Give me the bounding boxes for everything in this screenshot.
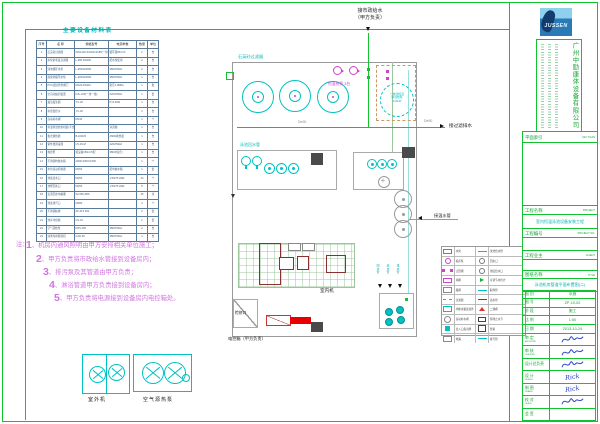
table-cell: L-380/2200W [75, 66, 109, 74]
table-cell [109, 158, 137, 166]
table-row: 7臭氧发生器YC-20P=0.2kW1台 [37, 99, 159, 107]
indoor-unit-box [259, 243, 281, 285]
pump-dot [396, 306, 404, 314]
legend-symbol [444, 316, 451, 323]
table-cell: 2 [137, 57, 148, 65]
legend-label: 二通阀 [489, 305, 525, 314]
project-name: 室内恒温泳池设备安装工程 [523, 219, 597, 224]
table-row: 22空气源热泵KRS-150380V/50Hz2台 [37, 225, 159, 233]
titleblock-row: 会 签 [522, 409, 596, 421]
table-cell: 个 [148, 158, 159, 166]
table-row: 20不锈钢扶梯SF-215 3042套 [37, 208, 159, 216]
table-cell: 台 [148, 74, 159, 82]
table-cell: 台 [148, 225, 159, 233]
table-cell: 19 [37, 200, 47, 208]
circulation-pump [367, 159, 377, 169]
legend-symbol [443, 249, 452, 254]
table-cell: 16 [37, 175, 47, 183]
table-cell: 1 [137, 108, 148, 116]
table-cell: 按摩池循环水泵 [47, 74, 75, 82]
table-row: 5PVC连接管件阀门DN20-DN110耐压1.0MPa1批 [37, 82, 159, 90]
signature-text: Rick [565, 372, 581, 382]
legend-symbol [443, 287, 452, 293]
table-row: 4按摩池循环水泵L-380/2200W380V/50Hz1台 [37, 74, 159, 82]
pipe-size-label: De50 [424, 119, 432, 123]
axis-marker [226, 72, 234, 80]
table-cell: 个 [148, 175, 159, 183]
table-cell: 个 [148, 200, 159, 208]
table-cell: 24 [137, 175, 148, 183]
table-cell: 不锈钢均衡水箱 [47, 158, 75, 166]
table-cell: 220V/50Hz [109, 91, 137, 99]
titleblock-value [550, 409, 595, 420]
table-cell: 不锈钢扶梯 [47, 208, 75, 216]
table-cell: CS-01 [75, 217, 109, 225]
table-cell: DN50 [75, 166, 109, 174]
table-cell: 配均衡水箱 [109, 166, 137, 174]
indoor-unit-label: 室内机 [320, 288, 334, 294]
table-row: 21池岸冲身器CS-012套 [37, 217, 159, 225]
drawing-sheet: 主要设备材料表 序号名 称规格型号电源参数数量单位1石英砂过滤器WG1400 Φ… [0, 0, 600, 424]
table-cell: DN40 [75, 116, 109, 124]
table-cell: 14 [37, 158, 47, 166]
table-cell: 22 [37, 225, 47, 233]
table-cell: 台 [148, 150, 159, 158]
dehumidifier-unit: 一体化恒温 除湿热泵 220kW [380, 83, 414, 117]
table-cell: YC-20 [75, 108, 109, 116]
column [311, 322, 323, 332]
supply-arrow-icon [366, 27, 370, 31]
table-cell: 套 [148, 166, 159, 174]
table-cell: 1 [137, 150, 148, 158]
table-row: 6全自动加药装置DJL-220(一用一备)220V/50Hz1套 [37, 91, 159, 99]
section-marker [231, 194, 235, 198]
pump-dot [385, 308, 393, 316]
equipment-table-wrap: 序号名 称规格型号电源参数数量单位1石英砂过滤器WG1400 Φ1400×218… [36, 40, 159, 242]
table-cell: 1 [137, 74, 148, 82]
table-cell: WG1400 Φ1400×2180(一用一备) [75, 49, 109, 57]
table-cell: 8 [137, 183, 148, 191]
table-row: 16池底给水口DN501:50/75-40W24个 [37, 175, 159, 183]
table-cell: 7 [37, 99, 47, 107]
table-row: 14不锈钢均衡水箱2000×1500×15001个 [37, 158, 159, 166]
table-header-row: 序号名 称规格型号电源参数数量单位 [37, 41, 159, 49]
legend-label: 出入口指示牌 [455, 325, 477, 334]
titleblock-row: 设计总负责 [522, 359, 596, 371]
dosing-pump-symbol [349, 66, 358, 75]
riser-label: 回水管 [376, 264, 380, 274]
table-cell: SF-215 304 [75, 208, 109, 216]
table-cell: DN20-DN110 [75, 82, 109, 90]
table-cell: 石英砂过滤器 [47, 49, 75, 57]
inner-frame-left [25, 29, 26, 420]
table-cell: 空气源热泵 [47, 225, 75, 233]
table-row: 15水位自动控制器DN50配均衡水箱1套 [37, 166, 159, 174]
titleblock-value [550, 396, 595, 407]
legend-label: 蝶阀 [455, 286, 477, 295]
table-cell: PVC连接管件阀门 [47, 82, 75, 90]
table-cell [75, 124, 109, 132]
table-cell: 1 [137, 124, 148, 132]
equipment-table: 序号名 称规格型号电源参数数量单位1石英砂过滤器WG1400 Φ1400×218… [37, 41, 159, 242]
table-cell: 池底排污口 [47, 200, 75, 208]
table-cell: 18 [37, 192, 47, 200]
grille-box [302, 243, 315, 251]
circulation-pump [288, 163, 299, 174]
table-cell: 1 [37, 49, 47, 57]
titleblock-row: 图 别水施 [522, 290, 596, 299]
table-cell: 套 [148, 91, 159, 99]
table-cell: 泳池循环水泵 [47, 66, 75, 74]
drain-arrow-icon [440, 124, 444, 128]
legend-label: 池底给水口 [489, 266, 525, 275]
drain-label: 接过滤排水 [449, 123, 472, 129]
table-cell: 9 [37, 116, 47, 124]
table-row: 9自动补水阀DN401个 [37, 116, 159, 124]
riser-arrow-icon [388, 284, 392, 288]
company-block: 广州中励康体设备有限公司 [536, 39, 582, 135]
table-row: 2水泵前毛发过滤器L-380 DN100配水泵使用2台 [37, 57, 159, 65]
logo-text: JUSSEN [540, 23, 572, 29]
legend-row: 均衡水箱连接件二通阀 [442, 305, 525, 315]
table-cell: 2 [137, 49, 148, 57]
legend-symbol [443, 306, 452, 312]
sand-filter-tank [279, 80, 311, 112]
circulation-pump [264, 163, 275, 174]
titleblock-value: Rick [550, 371, 595, 382]
table-cell: 6 [37, 91, 47, 99]
table-row: 1石英砂过滤器WG1400 Φ1400×2180(一用一备)循环量80m³/h2… [37, 49, 159, 57]
table-cell: DN80 [75, 200, 109, 208]
legend-label: 水泵 [455, 247, 477, 256]
table-cell: L-380 DN100 [75, 57, 109, 65]
pipe-size-label: De90 [298, 120, 306, 124]
legend-label: 泳池给水管 [489, 247, 525, 256]
table-cell: 380V(综合) [109, 150, 137, 158]
table-cell: 1 [137, 166, 148, 174]
table-cell: 池壁回水口 [47, 183, 75, 191]
titleblock-value: 水施 [550, 291, 595, 298]
table-cell [109, 192, 137, 200]
fan-icon [108, 364, 125, 381]
table-cell: 10 [37, 124, 47, 132]
company-contact-microtext [555, 44, 558, 128]
table-cell: 套 [148, 217, 159, 225]
company-logo: JUSSEN [540, 8, 572, 36]
table-row: 18溢流回水沟格栅W=250 ABS45米 [37, 192, 159, 200]
air-source-label: 空气源热泵 [143, 396, 173, 403]
riser-arrow-icon [378, 284, 382, 288]
table-cell: DN50 [75, 175, 109, 183]
sand-filter-tank [242, 81, 274, 113]
table-cell: 21 [37, 217, 47, 225]
table-cell: 臭氧发生器 [47, 99, 75, 107]
table-cell: 2 [137, 208, 148, 216]
filter-label: 石英砂过滤器 [238, 54, 263, 60]
legend-symbol [478, 317, 486, 322]
company-contact-microtext [541, 44, 544, 128]
table-cell: 4 [37, 74, 47, 82]
header-cell: 单位 [148, 41, 159, 49]
legend-label: 回水口 [489, 257, 525, 266]
table-cell: 全自动加药装置 [47, 91, 75, 99]
table-cell: 1 [137, 141, 148, 149]
circulation-pump [276, 163, 287, 174]
table-row: 19池底排污口DN804个 [37, 200, 159, 208]
table-cell: 电控柜 [47, 150, 75, 158]
control-box-red [290, 317, 311, 324]
table-cell: 套 [148, 208, 159, 216]
legend-label: 取样管 [489, 286, 525, 295]
table-cell: DJL-220(一用一备) [75, 91, 109, 99]
table-cell: 8 [37, 108, 47, 116]
legend-label: 闸阀 [455, 276, 477, 285]
table-cell: 1 [137, 82, 148, 90]
table-cell: 台 [148, 133, 159, 141]
main-pipe [237, 127, 415, 128]
titleblock-value: 施工 [550, 308, 595, 316]
table-cell: 20 [37, 208, 47, 216]
table-cell: 米 [148, 192, 159, 200]
titleblock-row: 审 定APPROVED [522, 334, 596, 346]
legend-row: 投药泵回水口 [442, 257, 525, 267]
table-cell: 1 [137, 91, 148, 99]
titleblock-value: Rick [550, 384, 595, 395]
legend-symbol [445, 326, 450, 331]
fan-icon [142, 362, 164, 384]
table-cell: 恒温除湿热泵机组(不含安装) [47, 124, 75, 132]
legend-symbol [480, 278, 484, 282]
titleblock-row: 日 期2013-10-24 [522, 325, 596, 334]
table-cell: L-380/2200W [75, 74, 109, 82]
titleblock-row: 图 号ZP-10-02 [522, 299, 596, 308]
legend-row: 水泵泳池给水管 [442, 247, 525, 257]
table-cell: 3 [37, 66, 47, 74]
titleblock-value [550, 346, 595, 357]
table-row: 3泳池循环水泵L-380/2200W380V/50Hz2台 [37, 66, 159, 74]
table-cell: 台 [148, 57, 159, 65]
table-cell: KRS-150 [75, 225, 109, 233]
legend-symbol [479, 258, 485, 264]
table-cell: 池岸冲身器 [47, 217, 75, 225]
table-cell: 26kW换热量 [109, 133, 137, 141]
titleblock-value [550, 359, 595, 370]
access-hatch-label: 检修口 [235, 311, 246, 316]
legend-symbol [443, 336, 452, 342]
signature-scribble [561, 347, 585, 358]
return-main-label: 泳池回水管 [240, 142, 260, 148]
indoor-unit-box [326, 255, 346, 273]
table-cell: UV-15-M [75, 141, 109, 149]
titleblock-row: 设 计DESIGNRick [522, 371, 596, 383]
supply-pipe [368, 33, 369, 127]
legend-label: 自动补水阀 [455, 315, 477, 324]
header-cell: 电源参数 [109, 41, 137, 49]
legend-label: 预埋止水节 [489, 315, 525, 324]
grille-box [288, 243, 301, 251]
legend-symbol [443, 278, 452, 283]
legend-symbol [442, 269, 453, 272]
column [311, 153, 323, 165]
table-cell: DN50 [75, 183, 109, 191]
table-cell [109, 200, 137, 208]
circulation-pump [387, 159, 397, 169]
warm-water-arrow-icon [418, 216, 422, 220]
keyplan-box [522, 142, 598, 207]
table-cell: 1 [137, 158, 148, 166]
titleblock-row: 比 例1:50 [522, 316, 596, 325]
company-name: 广州中励康体设备有限公司 [571, 42, 580, 132]
municipal-supply-label: 接市政给水 （甲方负责） [344, 8, 396, 21]
titleblock-value [550, 334, 595, 345]
compressor-icon [182, 374, 190, 382]
titleblock-row: 审 核CHECKED [522, 346, 596, 358]
pump-dot [397, 316, 405, 324]
table-cell: B-220/26 [75, 133, 109, 141]
table-cell: P=0.2kW [109, 99, 137, 107]
riser-arrow-icon [398, 284, 402, 288]
table-cell: 溢流回水沟格栅 [47, 192, 75, 200]
control-box-symbol [266, 315, 291, 326]
table-cell: 台 [148, 66, 159, 74]
table-cell: 详见图 [109, 124, 137, 132]
table-cell: 15 [37, 166, 47, 174]
table-cell: 1 [137, 99, 148, 107]
table-cell: 配水泵使用 [109, 57, 137, 65]
table-cell: 1 [137, 133, 148, 141]
table-cell: 循环量80m³/h [109, 49, 137, 57]
table-cell: 个 [148, 183, 159, 191]
header-cell: 规格型号 [75, 41, 109, 49]
legend-symbol [478, 290, 487, 291]
legend-row: 止回阀池底给水口 [442, 266, 525, 276]
legend-row: 蝶阀取样管 [442, 286, 525, 296]
legend-label: 溢水管 [489, 295, 525, 304]
legend-symbol [445, 258, 451, 264]
table-cell: 台 [148, 141, 159, 149]
valve-dot [367, 76, 370, 79]
table-cell: 5 [37, 82, 47, 90]
legend-label: 均衡水箱连接件 [455, 305, 477, 314]
table-cell [109, 116, 137, 124]
header-cell: 名 称 [47, 41, 75, 49]
table-cell: 水质监控仪 [47, 108, 75, 116]
legend-row: 过滤器溢水管 [442, 295, 525, 305]
legend-label: 止回阀 [455, 266, 477, 275]
table-cell: 紫外线消毒器 [47, 141, 75, 149]
table-row: 12紫外线消毒器UV-15-M220V/50Hz1台 [37, 141, 159, 149]
heat-exchanger [394, 220, 412, 238]
table-cell: 池底给水口 [47, 175, 75, 183]
table-row: 17池壁回水口DN501:50/75-40W8个 [37, 183, 159, 191]
signature-text: Rick [565, 384, 581, 394]
signature-scribble [561, 396, 585, 407]
strainer-symbol [252, 156, 262, 166]
signature-scribble [561, 334, 585, 345]
legend-label: 地漏 [455, 334, 477, 343]
table-cell [109, 217, 137, 225]
table-cell [109, 108, 137, 116]
fan-icon [89, 366, 106, 383]
table-cell: W=250 ABS [75, 192, 109, 200]
table-row: 13电控柜按设备150m³/h配380V(综合)1台 [37, 150, 159, 158]
legend-row: 地漏排污管 [442, 334, 525, 343]
table-cell: 2 [137, 217, 148, 225]
table-cell: 380V/50Hz [109, 66, 137, 74]
legend-table: 水泵泳池给水管投药泵回水口止回阀池底给水口闸阀可调节水位计蝶阀取样管过滤器溢水管… [441, 246, 526, 336]
titleblock-row: 校 对CHECK [522, 396, 596, 408]
legend-label: 可调节水位计 [489, 276, 525, 285]
titleblock-rows: 图 别水施图 号ZP-10-02阶 段施工比 例1:50日 期2013-10-2… [522, 290, 596, 421]
equipment-table-title: 主要设备材料表 [63, 26, 113, 34]
table-row: 8水质监控仪YC-201台 [37, 108, 159, 116]
table-cell: 台 [148, 99, 159, 107]
legend-symbol [478, 338, 487, 339]
table-cell: 12 [37, 141, 47, 149]
table-cell: 2 [37, 57, 47, 65]
control-box-label: 电控箱（甲方负责） [228, 336, 266, 342]
titleblock-value: ZP-10-02 [550, 299, 595, 307]
indoor-unit-box [279, 257, 294, 270]
titleblock-divider [509, 2, 510, 421]
table-cell: 220V/50Hz [109, 141, 137, 149]
legend-symbol [478, 251, 487, 252]
legend-symbol [443, 299, 452, 300]
legend-label: 排污管 [489, 334, 525, 343]
drawing-title: 泳池机房管道平面布置图(二) [523, 282, 597, 287]
valve-dot [405, 298, 408, 301]
heat-pump-count-label: 恒温热泵 3台 [328, 82, 350, 87]
table-row: 11板式换热器B-220/2626kW换热量1台 [37, 133, 159, 141]
valve-dot [367, 68, 370, 71]
table-cell: 水位自动控制器 [47, 166, 75, 174]
legend-symbol [479, 307, 485, 311]
table-cell: 耐压1.0MPa [109, 82, 137, 90]
riser-label: 排水管 [396, 264, 400, 274]
circulation-pump [377, 159, 387, 169]
table-cell: 17 [37, 183, 47, 191]
riser-label: 给水管 [386, 264, 390, 274]
outdoor-unit-label: 室外机 [88, 396, 106, 403]
pump-dot [385, 318, 393, 326]
table-cell: 台 [148, 49, 159, 57]
warm-water-label: 接温水管 [434, 213, 451, 219]
header-cell: 数量 [137, 41, 148, 49]
titleblock-row: 阶 段施工 [522, 308, 596, 317]
note-line: 5、甲方负责将电源接到设备房内电控箱处。 [54, 287, 179, 305]
strainer-symbol [241, 156, 251, 166]
table-cell: 380V/50Hz [109, 74, 137, 82]
table-cell: 个 [148, 116, 159, 124]
legend-row: 自动补水阀预埋止水节 [442, 315, 525, 325]
table-cell: 1:50/75-40W [109, 183, 137, 191]
table-cell: 45 [137, 192, 148, 200]
legend-symbol [478, 325, 486, 332]
signature-scribble [561, 359, 585, 370]
table-cell: 2 [137, 66, 148, 74]
table-cell: 11 [37, 133, 47, 141]
header-cell: 序号 [37, 41, 47, 49]
legend-symbol [478, 299, 487, 300]
floor-drain-symbol [378, 176, 390, 188]
legend-label: 过滤器 [455, 295, 477, 304]
dosing-pump-symbol [333, 66, 342, 75]
table-cell: YC-20 [75, 99, 109, 107]
legend-symbol [479, 268, 485, 274]
table-cell: 1 [137, 116, 148, 124]
table-cell: 2 [137, 225, 148, 233]
legend-row: 出入口指示牌管堵 [442, 325, 525, 335]
